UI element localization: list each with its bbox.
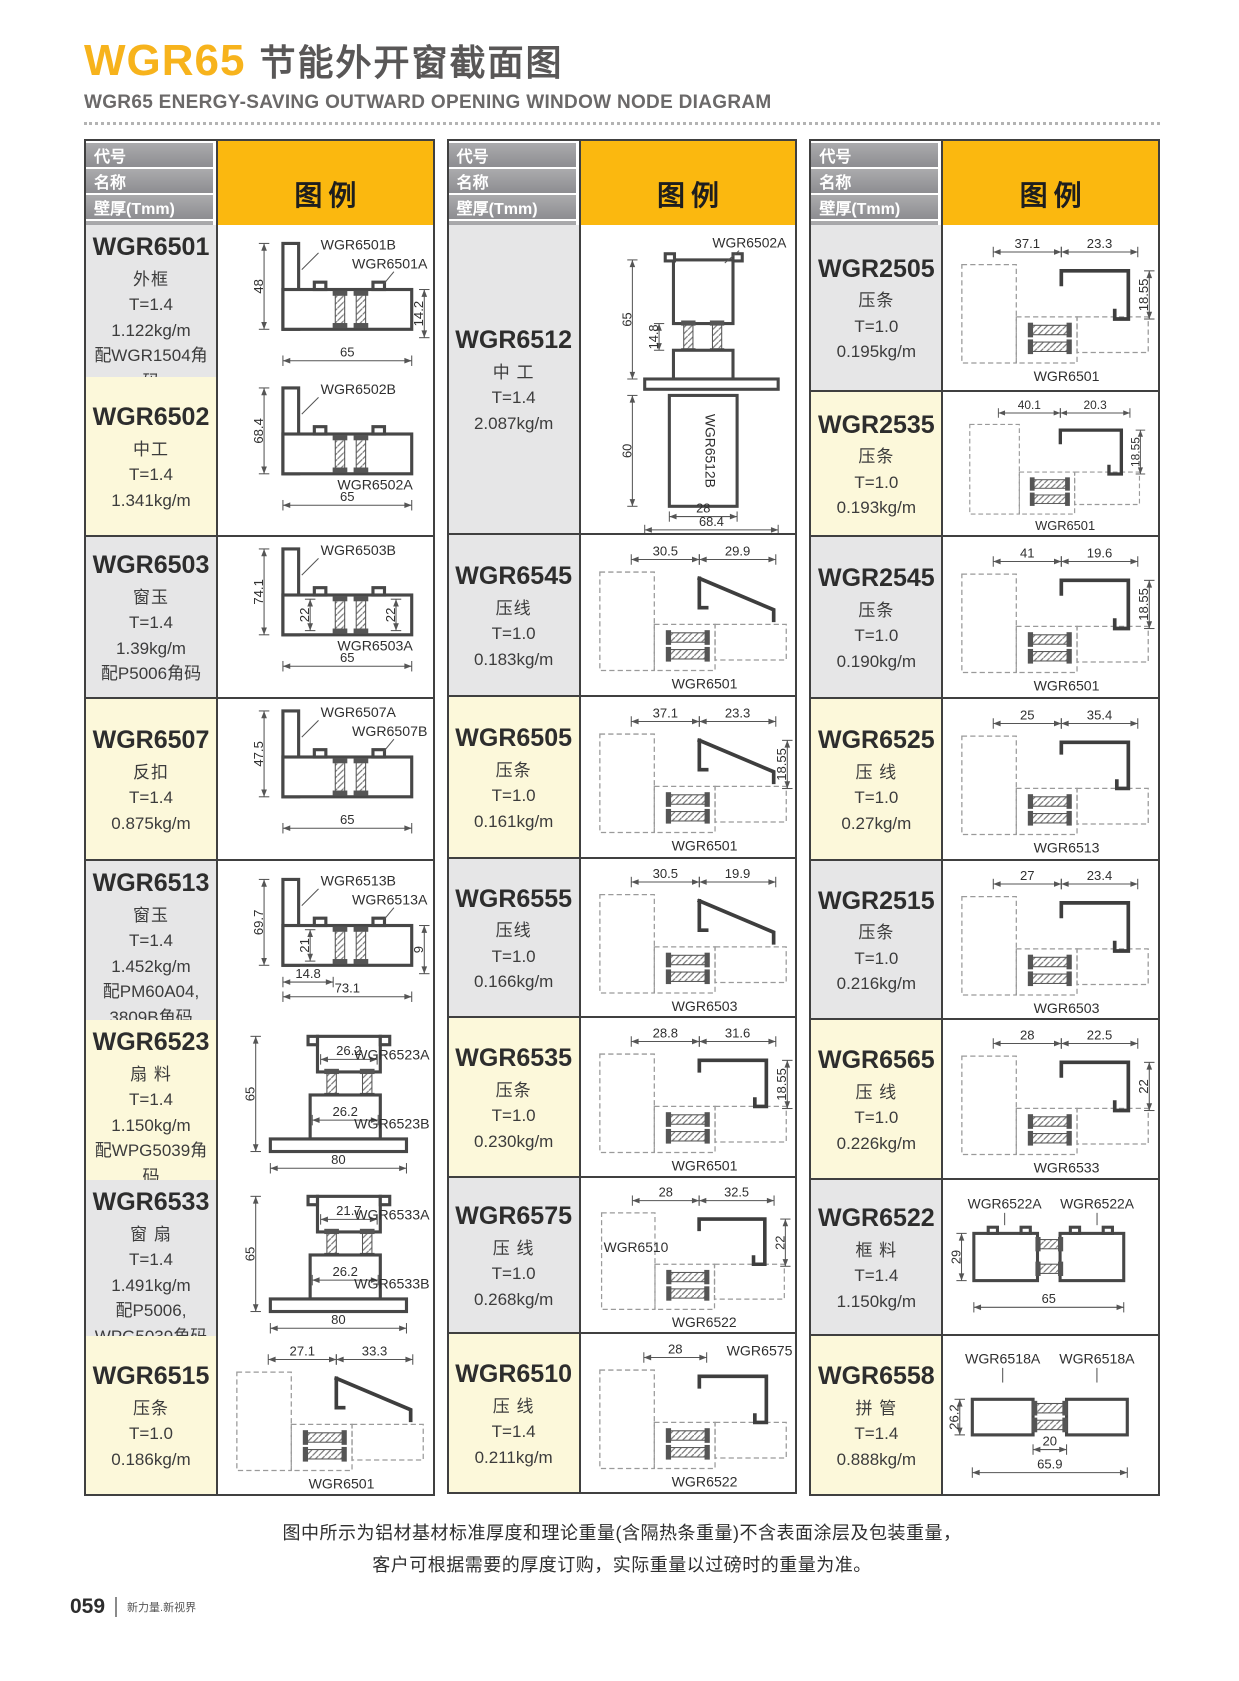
- profile-row: WGR6575压 线T=1.00.268kg/m2832.522WGR6522W…: [449, 1178, 796, 1334]
- profile-diagram: 69.773.192114.8WGR6513BWGR6513A: [218, 861, 433, 1034]
- profile-table-2: 代号名称壁厚(Tmm)重量(kg/m)图例WGR6512中 工T=1.42.08…: [447, 139, 798, 1494]
- profile-weight: 1.341kg/m: [111, 488, 190, 514]
- svg-text:14.8: 14.8: [295, 966, 320, 981]
- profile-name: 压条: [496, 1078, 532, 1104]
- svg-text:19.9: 19.9: [724, 866, 749, 881]
- svg-text:40.1: 40.1: [1018, 398, 1042, 412]
- svg-text:22: 22: [772, 1236, 787, 1250]
- svg-text:25: 25: [1020, 707, 1035, 722]
- profile-weight: 1.122kg/m: [111, 318, 190, 344]
- profile-label-cell: WGR6525压 线T=1.00.27kg/m: [811, 699, 943, 859]
- profile-diagram: 30.529.9WGR6501: [581, 535, 796, 695]
- profile-weight: 1.491kg/m: [111, 1273, 190, 1299]
- svg-text:WGR6522A: WGR6522A: [1060, 1196, 1135, 1212]
- profile-weight: 1.150kg/m: [111, 1113, 190, 1139]
- profile-label-cell: WGR6512中 工T=1.42.087kg/m: [449, 225, 581, 533]
- svg-text:23.3: 23.3: [1087, 236, 1112, 251]
- profile-diagram: 47.565WGR6507AWGR6507B: [218, 699, 433, 859]
- profile-name: 窗玉: [133, 903, 169, 929]
- svg-text:69.7: 69.7: [251, 910, 266, 935]
- profile-accessory: 配P5006角码: [101, 661, 201, 687]
- svg-text:65: 65: [340, 812, 355, 827]
- svg-text:WGR6513A: WGR6513A: [352, 892, 428, 908]
- profile-code: WGR6512: [455, 322, 572, 360]
- svg-text:23.4: 23.4: [1087, 868, 1112, 883]
- profile-thickness: T=1.0: [854, 1105, 898, 1131]
- svg-text:33.3: 33.3: [362, 1343, 387, 1358]
- profile-code: WGR6545: [455, 558, 572, 596]
- svg-text:27.1: 27.1: [290, 1343, 315, 1358]
- profile-weight: 0.161kg/m: [474, 809, 553, 835]
- profile-name: 压 线: [493, 1236, 535, 1262]
- svg-text:21: 21: [297, 938, 312, 953]
- profile-accessory: 配P5006,: [116, 1298, 187, 1324]
- footnote-line-2: 客户可根据需要的厚度订购，实际重量以过磅时的重量为准。: [84, 1550, 1160, 1582]
- profile-row: WGR6555压线T=1.00.166kg/m30.519.9WGR6503: [449, 859, 796, 1018]
- page-number: 059: [70, 1595, 105, 1619]
- svg-text:WGR6502A: WGR6502A: [712, 235, 787, 251]
- profile-label-cell: WGR6575压 线T=1.00.268kg/m: [449, 1178, 581, 1332]
- profile-weight: 0.186kg/m: [111, 1447, 190, 1473]
- profile-code: WGR6535: [455, 1040, 572, 1078]
- svg-text:22: 22: [1137, 1079, 1152, 1094]
- svg-text:WGR6518A: WGR6518A: [965, 1351, 1041, 1367]
- profile-code: WGR2535: [818, 407, 935, 445]
- svg-text:WGR6501: WGR6501: [309, 1475, 375, 1491]
- profile-code: WGR6565: [818, 1042, 935, 1080]
- svg-text:65: 65: [1042, 1291, 1056, 1306]
- profile-thickness: T=1.0: [854, 623, 898, 649]
- profile-row: WGR2545压条T=1.00.190kg/m4119.618.55WGR650…: [811, 537, 1158, 699]
- profile-label-cell: WGR6565压 线T=1.00.226kg/m: [811, 1020, 943, 1178]
- profile-name: 压线: [496, 918, 532, 944]
- svg-text:65: 65: [243, 1087, 258, 1102]
- header-field-1: 名称: [449, 169, 576, 193]
- svg-text:WGR6533: WGR6533: [1034, 1159, 1100, 1175]
- header-field-2: 壁厚(Tmm): [86, 195, 213, 219]
- profile-row: WGR6510压 线T=1.40.211kg/m28WGR6522WGR6575: [449, 1334, 796, 1492]
- profile-code: WGR6513: [93, 865, 210, 903]
- profile-label-cell: WGR6501外框T=1.41.122kg/m配WGR1504角码: [86, 225, 218, 398]
- svg-text:WGR6533A: WGR6533A: [354, 1206, 430, 1222]
- profile-name: 框 料: [855, 1238, 897, 1264]
- profile-thickness: T=1.4: [492, 1419, 536, 1445]
- title-divider: [84, 122, 1160, 125]
- profile-name: 中工: [133, 437, 169, 463]
- svg-text:65: 65: [619, 312, 634, 326]
- profile-name: 压条: [133, 1396, 169, 1422]
- profile-code: WGR2545: [818, 560, 935, 598]
- svg-text:WGR6501: WGR6501: [1035, 518, 1095, 533]
- svg-text:WGR6513: WGR6513: [1034, 839, 1100, 855]
- svg-text:14.2: 14.2: [411, 301, 426, 326]
- profile-diagram: 26.22065.9WGR6518AWGR6518A: [943, 1336, 1158, 1494]
- profile-thickness: T=1.4: [492, 385, 536, 411]
- profile-name: 压条: [858, 920, 894, 946]
- profile-row: WGR6503窗玉T=1.41.39kg/m配P5006角码74.1652222…: [86, 537, 433, 699]
- profile-diagram: 2832.522WGR6522WGR6510: [581, 1178, 796, 1332]
- title-chinese: 节能外开窗截面图: [259, 34, 563, 86]
- svg-text:27: 27: [1020, 868, 1035, 883]
- svg-text:18.55: 18.55: [774, 748, 789, 781]
- profile-diagram: 68.465WGR6502BWGR6502A: [218, 377, 433, 535]
- profile-weight: 0.216kg/m: [837, 971, 916, 997]
- profile-thickness: T=1.4: [129, 610, 173, 636]
- profile-code: WGR6523: [93, 1024, 210, 1062]
- profile-label-cell: WGR6507反扣T=1.40.875kg/m: [86, 699, 218, 859]
- svg-text:22: 22: [297, 608, 312, 623]
- profile-table-3: 代号名称壁厚(Tmm)重量(kg/m)图例WGR2505压条T=1.00.195…: [809, 139, 1160, 1496]
- svg-text:48: 48: [251, 279, 266, 294]
- profile-weight: 0.190kg/m: [837, 649, 916, 675]
- profile-thickness: T=1.4: [129, 292, 173, 318]
- profile-name: 中 工: [493, 360, 535, 386]
- svg-text:14.8: 14.8: [646, 324, 661, 349]
- svg-text:18.55: 18.55: [1129, 437, 1143, 467]
- svg-text:47.5: 47.5: [251, 741, 266, 766]
- profile-row: WGR6507反扣T=1.40.875kg/m47.565WGR6507AWGR…: [86, 699, 433, 861]
- profile-thickness: T=1.0: [129, 1421, 173, 1447]
- footer-divider: [115, 1597, 117, 1617]
- svg-text:WGR6501: WGR6501: [671, 1157, 737, 1173]
- svg-text:29: 29: [949, 1250, 964, 1264]
- profile-thickness: T=1.4: [129, 928, 173, 954]
- profile-diagram: 2723.4WGR6503: [943, 861, 1158, 1018]
- page-tagline: 新力量.新视界: [127, 1599, 196, 1615]
- profile-weight: 0.166kg/m: [474, 969, 553, 995]
- svg-text:28: 28: [658, 1184, 672, 1199]
- profile-code: WGR6510: [455, 1356, 572, 1394]
- profile-weight: 0.226kg/m: [837, 1131, 916, 1157]
- svg-text:65.9: 65.9: [1037, 1456, 1062, 1471]
- profile-diagram: 28.831.618.55WGR6501: [581, 1018, 796, 1176]
- profile-thickness: T=1.0: [492, 621, 536, 647]
- svg-text:28: 28: [1020, 1027, 1035, 1042]
- profile-code: WGR2505: [818, 251, 935, 289]
- svg-text:37.1: 37.1: [1015, 236, 1040, 251]
- svg-text:WGR6523B: WGR6523B: [354, 1115, 429, 1131]
- svg-text:WGR6502B: WGR6502B: [321, 381, 396, 397]
- profile-row: WGR6513窗玉T=1.41.452kg/m配PM60A04,3809B角码6…: [86, 861, 433, 1020]
- footnote: 图中所示为铝材基材标准厚度和理论重量(含隔热条重量)不含表面涂层及包装重量， 客…: [84, 1518, 1160, 1581]
- profile-label-cell: WGR6545压线T=1.00.183kg/m: [449, 535, 581, 695]
- profile-thickness: T=1.0: [854, 785, 898, 811]
- profile-name: 压条: [858, 598, 894, 624]
- svg-text:WGR6510: WGR6510: [603, 1239, 668, 1255]
- profile-label-cell: WGR6555压线T=1.00.166kg/m: [449, 859, 581, 1016]
- profile-diagram: 656014.82868.4WGR6502AWGR6512B: [581, 225, 796, 533]
- profile-name: 压条: [496, 758, 532, 784]
- profile-row: WGR6558拼 管T=1.40.888kg/m26.22065.9WGR651…: [811, 1336, 1158, 1494]
- profile-diagram: 37.123.318.55WGR6501: [943, 225, 1158, 390]
- profile-weight: 1.39kg/m: [116, 636, 186, 662]
- svg-text:18.55: 18.55: [1137, 279, 1152, 312]
- svg-text:41: 41: [1020, 545, 1035, 560]
- profile-thickness: T=1.0: [854, 470, 898, 496]
- svg-text:WGR6512B: WGR6512B: [702, 414, 718, 488]
- svg-text:WGR6501: WGR6501: [671, 675, 737, 691]
- profile-name: 外框: [133, 267, 169, 293]
- profile-row: WGR6515压条T=1.00.186kg/m27.133.3WGR6501: [86, 1336, 433, 1494]
- profile-thickness: T=1.4: [129, 1247, 173, 1273]
- svg-text:60: 60: [619, 444, 634, 458]
- header-field-2: 壁厚(Tmm): [449, 195, 576, 219]
- svg-text:80: 80: [331, 1312, 346, 1327]
- svg-text:WGR6518A: WGR6518A: [1060, 1351, 1136, 1367]
- profile-code: WGR6507: [93, 722, 210, 760]
- profile-row: WGR6525压 线T=1.00.27kg/m2535.4WGR6513: [811, 699, 1158, 861]
- svg-text:28: 28: [668, 1341, 683, 1356]
- svg-text:22: 22: [383, 608, 398, 623]
- profile-weight: 0.230kg/m: [474, 1129, 553, 1155]
- profile-name: 压 线: [855, 1080, 897, 1106]
- profile-diagram: 6526.226.280WGR6523AWGR6523B: [218, 1020, 433, 1193]
- svg-text:20.3: 20.3: [1084, 398, 1108, 412]
- profile-code: WGR6575: [455, 1198, 572, 1236]
- profile-name: 压 线: [855, 760, 897, 786]
- svg-text:32.5: 32.5: [724, 1184, 749, 1199]
- profile-diagram: 28WGR6522WGR6575: [581, 1334, 796, 1492]
- header-field-0: 代号: [86, 143, 213, 167]
- header-field-1: 名称: [86, 169, 213, 193]
- profile-row: WGR6505压条T=1.00.161kg/m37.123.318.55WGR6…: [449, 697, 796, 859]
- svg-text:30.5: 30.5: [652, 543, 677, 558]
- svg-text:19.6: 19.6: [1087, 545, 1112, 560]
- profile-code: WGR6515: [93, 1358, 210, 1396]
- profile-code: WGR6502: [93, 399, 210, 437]
- profile-code: WGR6503: [93, 547, 210, 585]
- svg-text:WGR6503A: WGR6503A: [337, 638, 413, 654]
- profile-code: WGR6555: [455, 881, 572, 919]
- profile-code: WGR6558: [818, 1358, 935, 1396]
- profile-diagram: 40.120.318.55WGR6501: [943, 392, 1158, 535]
- svg-text:35.4: 35.4: [1087, 707, 1112, 722]
- profile-thickness: T=1.0: [492, 944, 536, 970]
- svg-text:WGR6522A: WGR6522A: [968, 1196, 1043, 1212]
- svg-text:WGR6501B: WGR6501B: [321, 237, 396, 253]
- footnote-line-1: 图中所示为铝材基材标准厚度和理论重量(含隔热条重量)不含表面涂层及包装重量，: [84, 1518, 1160, 1550]
- profile-name: 反扣: [133, 760, 169, 786]
- svg-text:WGR6501: WGR6501: [1034, 677, 1100, 693]
- profile-weight: 0.193kg/m: [837, 495, 916, 521]
- table-header: 代号名称壁厚(Tmm)重量(kg/m)图例: [449, 141, 796, 225]
- profile-thickness: T=1.0: [854, 946, 898, 972]
- table-header: 代号名称壁厚(Tmm)重量(kg/m)图例: [86, 141, 433, 225]
- svg-text:WGR6503B: WGR6503B: [321, 542, 396, 558]
- profile-diagram: 4119.618.55WGR6501: [943, 537, 1158, 697]
- profile-diagram: 27.133.3WGR6501: [218, 1336, 433, 1494]
- profile-row: WGR6533窗 扇T=1.41.491kg/m配P5006,WPG5039角码…: [86, 1180, 433, 1336]
- profile-name: 拼 管: [855, 1396, 897, 1422]
- profile-thickness: T=1.0: [492, 1103, 536, 1129]
- svg-text:WGR6533B: WGR6533B: [354, 1275, 429, 1291]
- profile-row: WGR6501外框T=1.41.122kg/m配WGR1504角码486514.…: [86, 225, 433, 377]
- svg-text:WGR6501: WGR6501: [671, 837, 737, 853]
- profile-name: 扇 料: [130, 1062, 172, 1088]
- svg-text:28.8: 28.8: [652, 1025, 677, 1040]
- header-field-0: 代号: [449, 143, 576, 167]
- svg-text:WGR6507A: WGR6507A: [321, 704, 397, 720]
- table-header: 代号名称壁厚(Tmm)重量(kg/m)图例: [811, 141, 1158, 225]
- profile-diagram: 2822.522WGR6533: [943, 1020, 1158, 1178]
- svg-text:30.5: 30.5: [652, 866, 677, 881]
- svg-text:WGR6522: WGR6522: [671, 1473, 737, 1489]
- header-field-1: 名称: [811, 169, 938, 193]
- profile-label-cell: WGR6515压条T=1.00.186kg/m: [86, 1336, 218, 1494]
- profile-row: WGR6523扇 料T=1.41.150kg/m配WPG5039角码6526.2…: [86, 1020, 433, 1180]
- svg-text:68.4: 68.4: [251, 418, 266, 443]
- profile-weight: 2.087kg/m: [474, 411, 553, 437]
- profile-weight: 0.875kg/m: [111, 811, 190, 837]
- profile-label-cell: WGR6505压条T=1.00.161kg/m: [449, 697, 581, 857]
- svg-text:WGR6575: WGR6575: [726, 1342, 792, 1358]
- page-title: WGR65 节能外开窗截面图: [84, 34, 1160, 86]
- title-series-code: WGR65: [84, 36, 245, 86]
- profile-thickness: T=1.0: [492, 1261, 536, 1287]
- profile-weight: 1.452kg/m: [111, 954, 190, 980]
- svg-text:WGR6501A: WGR6501A: [352, 256, 428, 272]
- profile-code: WGR6522: [818, 1200, 935, 1238]
- catalog-page: { "page": { "title_code": "WGR65", "titl…: [0, 0, 1239, 1681]
- profile-diagram: 2535.4WGR6513: [943, 699, 1158, 859]
- title-english: WGR65 ENERGY-SAVING OUTWARD OPENING WIND…: [84, 92, 1160, 114]
- svg-text:WGR6503: WGR6503: [1034, 1000, 1100, 1016]
- header-field-2: 壁厚(Tmm): [811, 195, 938, 219]
- profile-name: 压条: [858, 288, 894, 314]
- profile-label-cell: WGR6535压条T=1.00.230kg/m: [449, 1018, 581, 1176]
- svg-text:31.6: 31.6: [724, 1025, 749, 1040]
- profile-weight: 0.27kg/m: [841, 811, 911, 837]
- profile-thickness: T=1.0: [492, 783, 536, 809]
- profile-name: 窗 扇: [130, 1222, 172, 1248]
- profile-thickness: T=1.4: [129, 462, 173, 488]
- page-content: WGR65 节能外开窗截面图 WGR65 ENERGY-SAVING OUTWA…: [84, 34, 1160, 1581]
- svg-text:22.5: 22.5: [1087, 1027, 1112, 1042]
- profile-label-cell: WGR6533窗 扇T=1.41.491kg/m配P5006,WPG5039角码: [86, 1180, 218, 1353]
- profile-label-cell: WGR2535压条T=1.00.193kg/m: [811, 392, 943, 535]
- profile-thickness: T=1.0: [854, 314, 898, 340]
- profile-thickness: T=1.4: [129, 785, 173, 811]
- profile-table-1: 代号名称壁厚(Tmm)重量(kg/m)图例WGR6501外框T=1.41.122…: [84, 139, 435, 1496]
- profile-label-cell: WGR2505压条T=1.00.195kg/m: [811, 225, 943, 390]
- profile-code: WGR6501: [93, 229, 210, 267]
- profile-code: WGR6533: [93, 1184, 210, 1222]
- svg-text:37.1: 37.1: [652, 705, 677, 720]
- svg-text:80: 80: [331, 1152, 346, 1167]
- profile-accessory: 配PM60A04,: [103, 979, 199, 1005]
- profile-diagram: 30.519.9WGR6503: [581, 859, 796, 1016]
- svg-text:74.1: 74.1: [251, 579, 266, 604]
- svg-text:65: 65: [340, 345, 355, 360]
- profile-row: WGR2505压条T=1.00.195kg/m37.123.318.55WGR6…: [811, 225, 1158, 392]
- profile-label-cell: WGR2545压条T=1.00.190kg/m: [811, 537, 943, 697]
- profile-weight: 0.268kg/m: [474, 1287, 553, 1313]
- svg-text:WGR6522: WGR6522: [672, 1314, 737, 1330]
- svg-text:20: 20: [1043, 1433, 1058, 1448]
- profile-weight: 0.888kg/m: [837, 1447, 916, 1473]
- profile-label-cell: WGR6558拼 管T=1.40.888kg/m: [811, 1336, 943, 1494]
- svg-text:73.1: 73.1: [335, 981, 360, 996]
- svg-text:65: 65: [243, 1247, 258, 1262]
- profile-label-cell: WGR6510压 线T=1.40.211kg/m: [449, 1334, 581, 1492]
- profile-code: WGR6525: [818, 722, 935, 760]
- profile-diagram: 2965WGR6522AWGR6522A: [943, 1180, 1158, 1334]
- svg-text:WGR6523A: WGR6523A: [354, 1046, 430, 1062]
- svg-text:26.2: 26.2: [947, 1404, 962, 1429]
- profile-label-cell: WGR6522框 料T=1.41.150kg/m: [811, 1180, 943, 1334]
- profile-weight: 0.211kg/m: [475, 1445, 553, 1471]
- profile-row: WGR6565压 线T=1.00.226kg/m2822.522WGR6533: [811, 1020, 1158, 1180]
- profile-row: WGR6535压条T=1.00.230kg/m28.831.618.55WGR6…: [449, 1018, 796, 1178]
- profile-name: 窗玉: [133, 585, 169, 611]
- svg-text:WGR6501: WGR6501: [1034, 368, 1100, 384]
- svg-text:18.55: 18.55: [774, 1068, 789, 1101]
- profile-thickness: T=1.4: [854, 1421, 898, 1447]
- svg-text:WGR6503: WGR6503: [671, 998, 737, 1014]
- profile-row: WGR6502中工T=1.41.341kg/m68.465WGR6502BWGR…: [86, 377, 433, 537]
- profile-row: WGR6512中 工T=1.42.087kg/m656014.82868.4WG…: [449, 225, 796, 535]
- svg-text:WGR6507B: WGR6507B: [352, 723, 427, 739]
- header-field-0: 代号: [811, 143, 938, 167]
- profile-label-cell: WGR6502中工T=1.41.341kg/m: [86, 377, 218, 535]
- profile-label-cell: WGR6513窗玉T=1.41.452kg/m配PM60A04,3809B角码: [86, 861, 218, 1034]
- profile-name: 压线: [496, 596, 532, 622]
- profile-weight: 0.183kg/m: [474, 647, 553, 673]
- svg-text:9: 9: [411, 946, 426, 953]
- profile-row: WGR2515压条T=1.00.216kg/m2723.4WGR6503: [811, 861, 1158, 1020]
- profile-code: WGR2515: [818, 883, 935, 921]
- profile-weight: 0.195kg/m: [837, 339, 916, 365]
- profile-weight: 1.150kg/m: [837, 1289, 916, 1315]
- profile-label-cell: WGR2515压条T=1.00.216kg/m: [811, 861, 943, 1018]
- profile-name: 压条: [858, 444, 894, 470]
- profile-row: WGR2535压条T=1.00.193kg/m40.120.318.55WGR6…: [811, 392, 1158, 537]
- profile-diagram: 486514.2WGR6501BWGR6501A: [218, 225, 433, 398]
- svg-text:23.3: 23.3: [724, 705, 749, 720]
- svg-text:29.9: 29.9: [724, 543, 749, 558]
- svg-text:WGR6513B: WGR6513B: [321, 873, 396, 889]
- profile-thickness: T=1.4: [854, 1263, 898, 1289]
- profile-label-cell: WGR6503窗玉T=1.41.39kg/m配P5006角码: [86, 537, 218, 697]
- profile-diagram: 6521.726.280WGR6533AWGR6533B: [218, 1180, 433, 1353]
- svg-text:68.4: 68.4: [699, 514, 724, 529]
- profile-thickness: T=1.4: [129, 1087, 173, 1113]
- profile-code: WGR6505: [455, 720, 572, 758]
- profile-row: WGR6522框 料T=1.41.150kg/m2965WGR6522AWGR6…: [811, 1180, 1158, 1336]
- profile-diagram: 74.1652222WGR6503BWGR6503A: [218, 537, 433, 697]
- svg-text:WGR6502A: WGR6502A: [337, 477, 413, 493]
- profile-diagram: 37.123.318.55WGR6501: [581, 697, 796, 857]
- profile-row: WGR6545压线T=1.00.183kg/m30.529.9WGR6501: [449, 535, 796, 697]
- page-footer: 059 新力量.新视界: [70, 1595, 196, 1619]
- profile-name: 压 线: [493, 1394, 535, 1420]
- svg-text:18.55: 18.55: [1137, 588, 1152, 621]
- profile-tables: 代号名称壁厚(Tmm)重量(kg/m)图例WGR6501外框T=1.41.122…: [84, 139, 1160, 1496]
- profile-label-cell: WGR6523扇 料T=1.41.150kg/m配WPG5039角码: [86, 1020, 218, 1193]
